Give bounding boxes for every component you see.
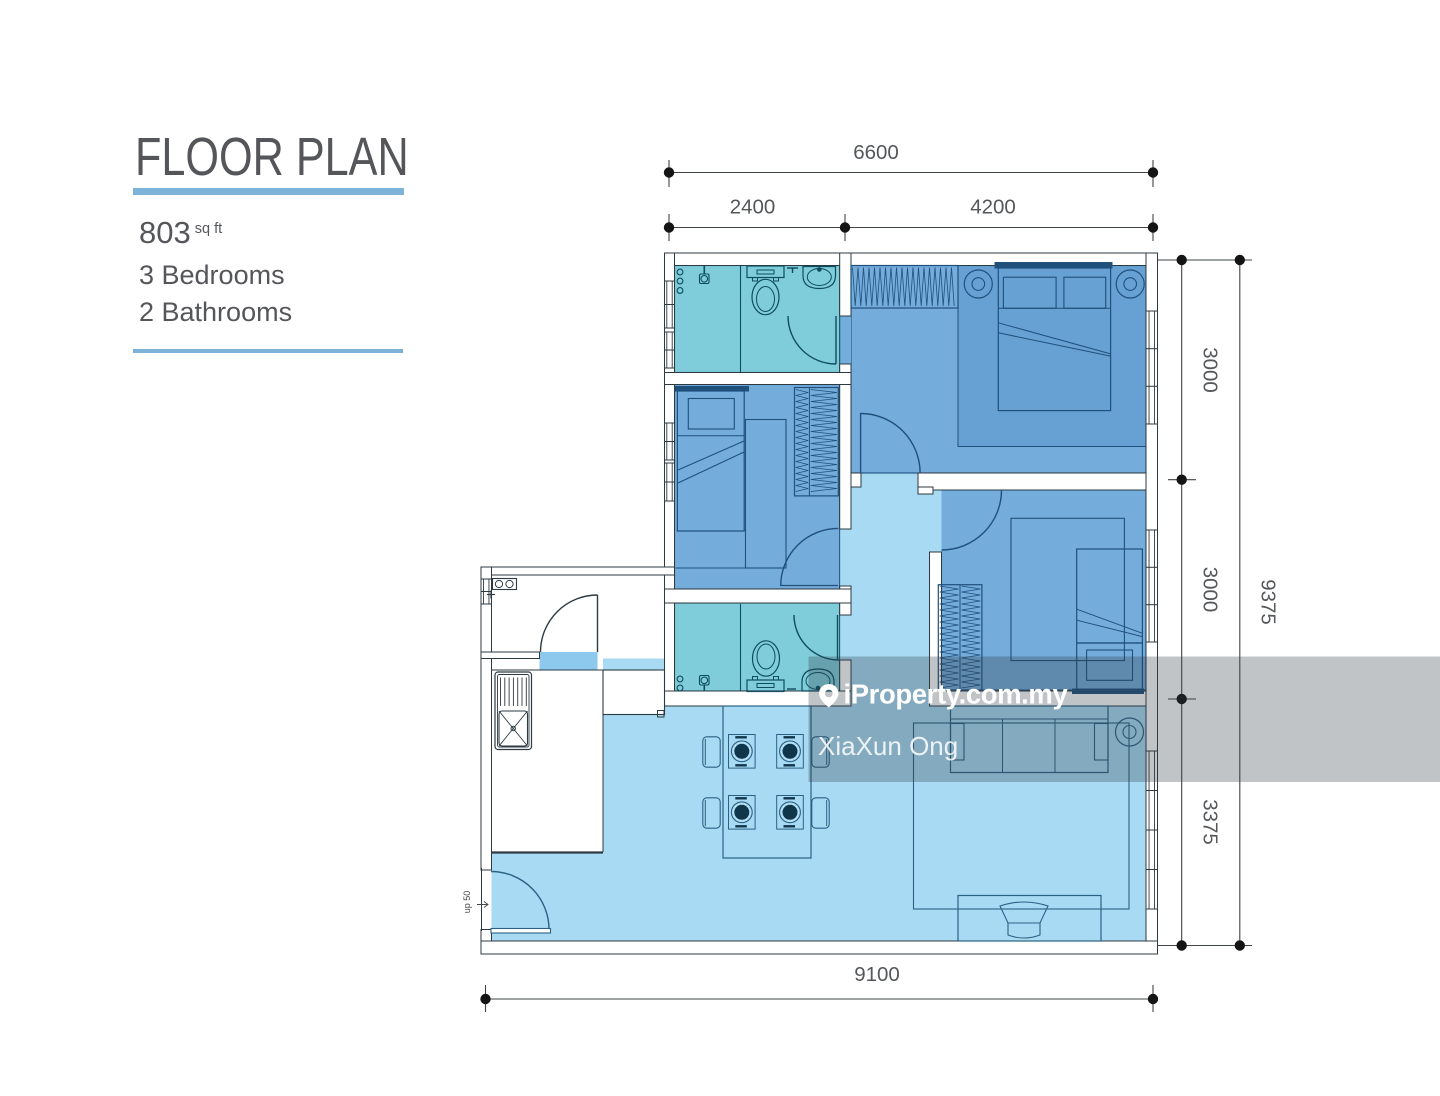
- svg-text:9375: 9375: [1257, 579, 1280, 625]
- svg-text:XiaXun Ong: XiaXun Ong: [818, 731, 958, 761]
- svg-text:2400: 2400: [730, 196, 776, 219]
- svg-text:4200: 4200: [970, 196, 1016, 219]
- svg-text:6600: 6600: [853, 141, 899, 164]
- svg-text:9100: 9100: [854, 963, 900, 986]
- svg-text:3000: 3000: [1199, 567, 1222, 613]
- svg-text:3375: 3375: [1199, 799, 1222, 845]
- svg-text:3000: 3000: [1199, 347, 1222, 393]
- svg-text:iProperty.com.my: iProperty.com.my: [844, 679, 1069, 710]
- svg-text:up 50: up 50: [462, 891, 472, 914]
